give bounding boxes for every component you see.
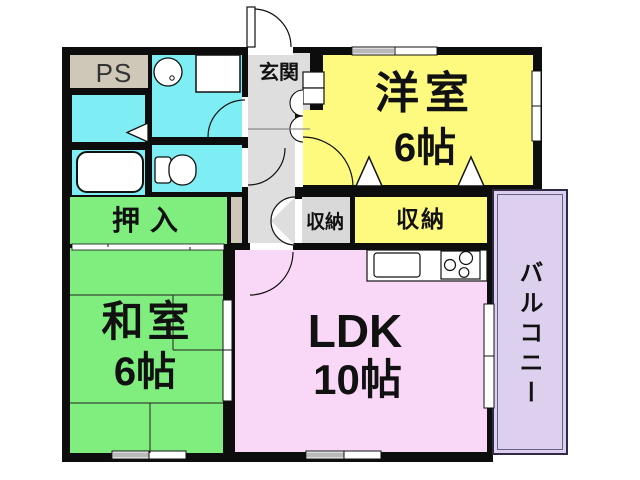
japanese-room-size: 6帖 bbox=[75, 348, 215, 396]
washbasin-icon bbox=[154, 58, 182, 86]
balcony-label: バルコニー bbox=[511, 232, 545, 437]
balcony-sliding-door bbox=[484, 304, 494, 408]
storage-double-door-upper-arc bbox=[271, 197, 295, 221]
storage-west-label: 収納 bbox=[355, 202, 487, 236]
floor-plan: PS 玄関 洋室 6帖 収納 収納 押入 和室 6帖 LDK 10帖 バルコニー bbox=[0, 0, 640, 480]
western-room-door-opening bbox=[295, 137, 303, 187]
storage-double-door-lower-arc bbox=[271, 221, 295, 245]
entrance-label: 玄関 bbox=[248, 60, 310, 86]
fusuma-sliding-door bbox=[72, 244, 224, 250]
japanese-room-label: 和室 bbox=[75, 296, 220, 348]
bath-door-triangle-icon bbox=[127, 123, 148, 142]
stove-icon bbox=[441, 251, 480, 279]
western-room-size: 6帖 bbox=[330, 124, 520, 172]
kitchen-sink-icon bbox=[374, 253, 420, 277]
japanese-ldk-sliding-door bbox=[223, 300, 232, 401]
window-japanese-bottom bbox=[112, 451, 186, 459]
toilet-door-arc bbox=[248, 148, 285, 185]
ldk-size: 10帖 bbox=[250, 355, 465, 405]
shoe-door-arc-upper bbox=[290, 90, 303, 116]
ldk-label: LDK bbox=[250, 305, 460, 357]
window-western-right bbox=[532, 71, 541, 141]
window-western-top bbox=[352, 47, 437, 55]
entrance-door-arc bbox=[255, 9, 291, 47]
washroom-door-arc bbox=[208, 100, 245, 137]
washbasin-drain-dot bbox=[170, 76, 174, 80]
ps-label: PS bbox=[78, 58, 150, 88]
window-ldk-bottom bbox=[306, 451, 381, 459]
storage-hall-label: 収納 bbox=[300, 207, 350, 237]
ldk-door-arc bbox=[250, 252, 293, 295]
western-room-label: 洋室 bbox=[320, 68, 530, 120]
toilet-icon bbox=[155, 155, 196, 185]
kitchen-counter bbox=[367, 250, 487, 281]
bathtub-icon bbox=[77, 152, 143, 192]
closet-label: 押入 bbox=[80, 204, 220, 238]
washing-machine-icon bbox=[196, 55, 240, 92]
toilet-door-opening bbox=[242, 148, 248, 187]
entrance-door-opening bbox=[248, 47, 293, 55]
washroom-door-opening bbox=[242, 97, 248, 137]
entrance-door-leaf bbox=[247, 7, 255, 47]
